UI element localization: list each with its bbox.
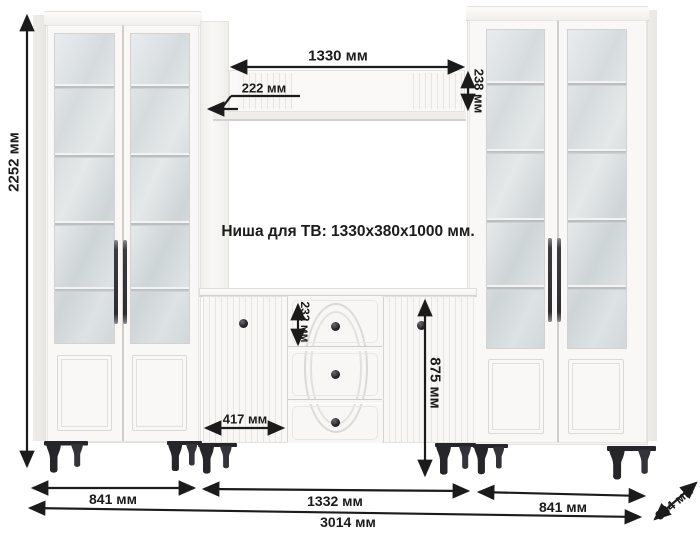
dim-commode-height-label: 875 мм (427, 357, 444, 408)
tv-shelf-bottom-board (213, 112, 466, 121)
shelf-line (487, 149, 544, 154)
dim-commode-door-width-label: 417 мм (223, 412, 268, 427)
drawer-gap (288, 399, 382, 404)
shelf-line (55, 84, 114, 89)
left-cabinet-lower-panel-right (132, 355, 187, 431)
furniture-leg (607, 446, 657, 480)
right-cabinet-lower-panel-left (488, 359, 544, 434)
dim-total-width-label: 3014 мм (320, 514, 376, 530)
left-cabinet-handle-left (114, 240, 118, 324)
knob (239, 319, 248, 328)
dim-left-cabinet-width-label: 841 мм (89, 491, 137, 507)
shelf-line (131, 287, 189, 292)
shelf-line (131, 153, 189, 158)
shelf-line (487, 81, 544, 86)
knob (417, 321, 426, 330)
shelf-line (131, 84, 189, 89)
right-cabinet-glass-right (567, 29, 627, 349)
knob (331, 418, 340, 427)
shelf-line (487, 218, 544, 223)
furniture-leg (44, 441, 90, 474)
drawer-gap (288, 346, 382, 351)
shelf-line (568, 218, 626, 223)
knob (331, 322, 340, 331)
left-cabinet-handle-right (123, 240, 127, 324)
shelf-line (131, 221, 189, 226)
left-cabinet-glass-right (130, 33, 190, 344)
tv-niche-side-pillar (200, 21, 229, 291)
left-cabinet-lower-panel-left (57, 355, 112, 431)
dim-shelf-depth-label: 222 мм (242, 81, 287, 96)
dim-commode-width-label: 1332 мм (307, 493, 363, 509)
dim-total-height-label: 2252 мм (6, 132, 23, 192)
shelf-line (55, 287, 114, 292)
dim-right-cabinet-width-label: 841 мм (539, 499, 587, 515)
right-cabinet-handle-left (548, 238, 552, 322)
dim-shelf-width-label: 1330 мм (308, 48, 368, 65)
tv-shelf-fluting-right (408, 73, 463, 109)
right-cabinet-cornice (466, 7, 649, 21)
right-cabinet-lower-panel-right (568, 359, 624, 434)
shelf-line (55, 221, 114, 226)
knob (331, 370, 340, 379)
furniture-dimension-diagram: 2252 мм 1330 мм 222 мм 238 мм 232 мм 417… (0, 0, 700, 534)
furniture-leg (473, 444, 509, 475)
tv-niche-note: Ниша для ТВ: 1330x380x1000 мм. (221, 223, 474, 241)
furniture-leg (198, 443, 238, 474)
dim-unit-depth-label: 384 мм (652, 483, 696, 523)
dim-top-drawer-height-label: 232 мм (298, 301, 312, 342)
right-cabinet-glass-left (486, 29, 545, 349)
shelf-line (487, 285, 544, 290)
left-cabinet-side-panel (33, 15, 45, 441)
right-cabinet-handle-right (557, 238, 561, 322)
shelf-line (568, 149, 626, 154)
furniture-leg (435, 443, 477, 475)
right-cabinet-side-panel (648, 10, 657, 441)
left-cabinet-cornice (44, 12, 202, 26)
shelf-line (568, 81, 626, 86)
shelf-line (568, 285, 626, 290)
left-cabinet-glass-left (54, 33, 115, 344)
dim-shelf-panel-height-label: 238 мм (472, 69, 487, 114)
shelf-line (55, 153, 114, 158)
